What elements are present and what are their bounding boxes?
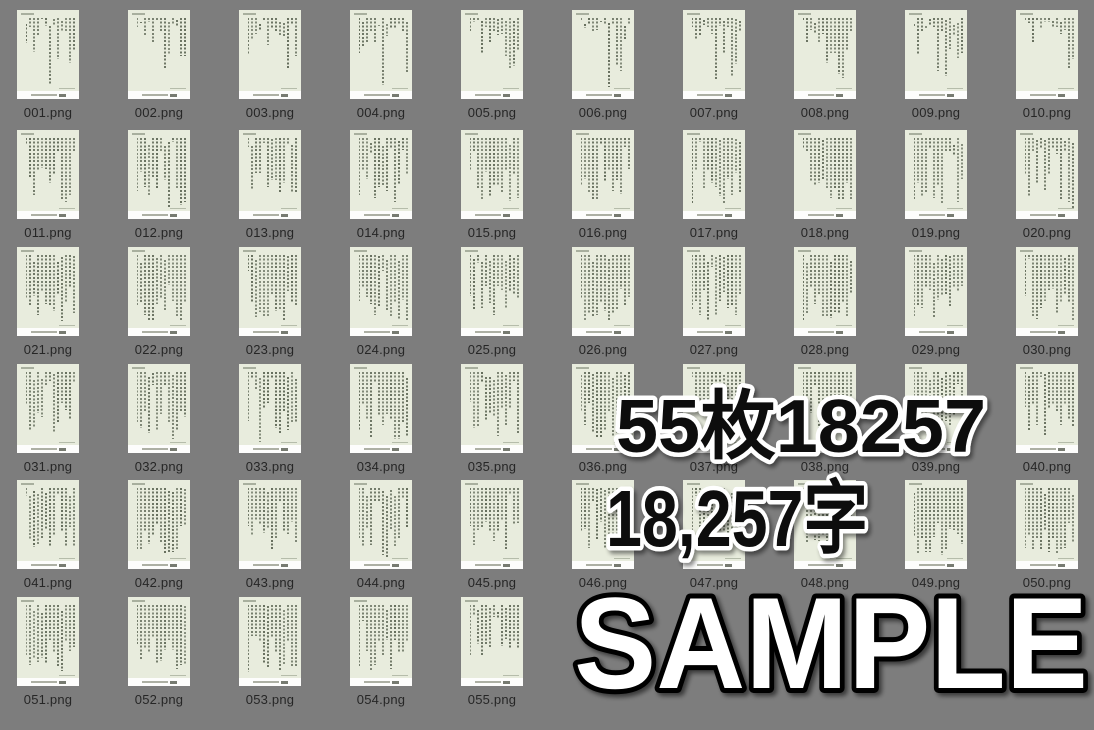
thumbnail-page-number-mark bbox=[392, 208, 408, 210]
thumbnail-text-lines bbox=[909, 488, 963, 555]
file-label[interactable]: 052.png bbox=[114, 693, 204, 706]
file-label[interactable]: 053.png bbox=[225, 693, 315, 706]
file-label[interactable]: 049.png bbox=[891, 576, 981, 589]
thumbnail-footer bbox=[683, 561, 745, 569]
thumbnail-header-mark bbox=[576, 483, 589, 485]
thumbnail-page-number-mark bbox=[170, 88, 186, 90]
thumbnail-footer bbox=[350, 91, 412, 99]
thumbnail-page-number-mark bbox=[947, 558, 963, 560]
file-thumbnail[interactable] bbox=[128, 10, 190, 99]
thumbnail-text-lines bbox=[798, 488, 852, 555]
file-thumbnail[interactable] bbox=[17, 130, 79, 219]
file-label[interactable]: 010.png bbox=[1002, 106, 1092, 119]
thumbnail-footer bbox=[905, 445, 967, 453]
thumbnail-page-number-mark bbox=[725, 208, 741, 210]
file-item[interactable]: 033.png bbox=[239, 364, 301, 473]
thumbnail-footer bbox=[1016, 328, 1078, 336]
thumbnail-page-number-mark bbox=[281, 88, 297, 90]
thumbnail-page-number-mark bbox=[836, 558, 852, 560]
thumbnail-text-lines bbox=[132, 255, 186, 322]
file-item[interactable]: 046.png bbox=[572, 480, 634, 589]
file-label[interactable]: 035.png bbox=[447, 460, 537, 473]
thumbnail-header-mark bbox=[687, 483, 700, 485]
file-item[interactable]: 022.png bbox=[128, 247, 190, 356]
thumbnail-footer bbox=[683, 445, 745, 453]
file-thumbnail[interactable] bbox=[683, 130, 745, 219]
file-thumbnail[interactable] bbox=[17, 10, 79, 99]
file-label[interactable]: 026.png bbox=[558, 343, 648, 356]
file-item[interactable]: 007.png bbox=[683, 10, 745, 119]
thumbnail-page-number-mark bbox=[503, 558, 519, 560]
file-item[interactable]: 023.png bbox=[239, 247, 301, 356]
file-label[interactable]: 006.png bbox=[558, 106, 648, 119]
file-item[interactable]: 042.png bbox=[128, 480, 190, 589]
thumbnail-header-mark bbox=[132, 250, 145, 252]
thumbnail-page-number-mark bbox=[170, 325, 186, 327]
thumbnail-page-number-mark bbox=[59, 558, 75, 560]
thumbnail-page-number-mark bbox=[59, 675, 75, 677]
thumbnail-page-number-mark bbox=[59, 325, 75, 327]
file-item[interactable]: 015.png bbox=[461, 130, 523, 239]
thumbnail-header-mark bbox=[465, 250, 478, 252]
thumbnail-footer bbox=[17, 678, 79, 686]
thumbnail-text-lines bbox=[687, 488, 741, 555]
file-thumbnail[interactable] bbox=[128, 247, 190, 336]
file-item[interactable]: 049.png bbox=[905, 480, 967, 589]
file-thumbnail[interactable] bbox=[461, 130, 523, 219]
file-thumbnail[interactable] bbox=[572, 10, 634, 99]
file-thumbnail[interactable] bbox=[683, 364, 745, 453]
thumbnail-text-lines bbox=[465, 488, 519, 555]
thumbnail-page-number-mark bbox=[947, 442, 963, 444]
file-label[interactable]: 001.png bbox=[3, 106, 93, 119]
thumbnail-header-mark bbox=[1020, 483, 1033, 485]
file-thumbnail[interactable] bbox=[350, 364, 412, 453]
file-thumbnail[interactable] bbox=[350, 130, 412, 219]
file-item[interactable]: 001.png bbox=[17, 10, 79, 119]
file-thumbnail[interactable] bbox=[683, 10, 745, 99]
file-item[interactable]: 040.png bbox=[1016, 364, 1078, 473]
file-thumbnail[interactable] bbox=[17, 247, 79, 336]
file-item[interactable]: 039.png bbox=[905, 364, 967, 473]
file-label[interactable]: 028.png bbox=[780, 343, 870, 356]
file-label[interactable]: 004.png bbox=[336, 106, 426, 119]
file-item[interactable]: 013.png bbox=[239, 130, 301, 239]
file-thumbnail[interactable] bbox=[572, 247, 634, 336]
file-label[interactable]: 011.png bbox=[3, 226, 93, 239]
thumbnail-header-mark bbox=[909, 250, 922, 252]
thumbnail-text-lines bbox=[465, 138, 519, 205]
thumbnail-header-mark bbox=[909, 367, 922, 369]
file-thumbnail[interactable] bbox=[239, 364, 301, 453]
file-item[interactable]: 018.png bbox=[794, 130, 856, 239]
thumbnail-header-mark bbox=[243, 250, 256, 252]
file-thumbnail[interactable] bbox=[794, 10, 856, 99]
file-thumbnail[interactable] bbox=[17, 480, 79, 569]
thumbnail-page-number-mark bbox=[725, 88, 741, 90]
thumbnail-page-number-mark bbox=[59, 88, 75, 90]
file-item[interactable]: 026.png bbox=[572, 247, 634, 356]
thumbnail-footer bbox=[239, 91, 301, 99]
thumbnail-page-number-mark bbox=[281, 675, 297, 677]
file-thumbnail[interactable] bbox=[794, 247, 856, 336]
thumbnail-page-number-mark bbox=[947, 325, 963, 327]
file-label[interactable]: 005.png bbox=[447, 106, 537, 119]
file-item[interactable]: 010.png bbox=[1016, 10, 1078, 119]
file-label[interactable]: 013.png bbox=[225, 226, 315, 239]
file-item[interactable]: 016.png bbox=[572, 130, 634, 239]
file-item[interactable]: 043.png bbox=[239, 480, 301, 589]
thumbnail-footer bbox=[17, 445, 79, 453]
file-label[interactable]: 019.png bbox=[891, 226, 981, 239]
thumbnail-footer bbox=[128, 445, 190, 453]
file-thumbnail[interactable] bbox=[794, 364, 856, 453]
thumbnail-page-number-mark bbox=[1058, 442, 1074, 444]
file-label[interactable]: 044.png bbox=[336, 576, 426, 589]
file-label[interactable]: 017.png bbox=[669, 226, 759, 239]
thumbnail-text-lines bbox=[687, 255, 741, 322]
file-label[interactable]: 022.png bbox=[114, 343, 204, 356]
thumbnail-page-number-mark bbox=[836, 325, 852, 327]
thumbnail-text-lines bbox=[798, 18, 852, 85]
thumbnail-text-lines bbox=[354, 605, 408, 672]
thumbnail-footer bbox=[350, 561, 412, 569]
thumbnail-footer bbox=[794, 211, 856, 219]
thumbnail-header-mark bbox=[465, 367, 478, 369]
file-thumbnail[interactable] bbox=[572, 480, 634, 569]
file-item[interactable]: 005.png bbox=[461, 10, 523, 119]
file-label[interactable]: 029.png bbox=[891, 343, 981, 356]
file-item[interactable]: 021.png bbox=[17, 247, 79, 356]
file-item[interactable]: 038.png bbox=[794, 364, 856, 473]
file-item[interactable]: 054.png bbox=[350, 597, 412, 706]
file-label[interactable]: 015.png bbox=[447, 226, 537, 239]
file-item[interactable]: 055.png bbox=[461, 597, 523, 706]
thumbnail-footer bbox=[128, 91, 190, 99]
file-item[interactable]: 004.png bbox=[350, 10, 412, 119]
thumbnail-header-mark bbox=[576, 13, 589, 15]
file-label[interactable]: 008.png bbox=[780, 106, 870, 119]
thumbnail-header-mark bbox=[798, 250, 811, 252]
file-thumbnail[interactable] bbox=[794, 480, 856, 569]
thumbnail-header-mark bbox=[243, 13, 256, 15]
file-thumbnail[interactable] bbox=[794, 130, 856, 219]
file-thumbnail[interactable] bbox=[128, 597, 190, 686]
file-thumbnail[interactable] bbox=[239, 480, 301, 569]
thumbnail-page-number-mark bbox=[170, 208, 186, 210]
file-item[interactable]: 014.png bbox=[350, 130, 412, 239]
file-thumbnail[interactable] bbox=[461, 247, 523, 336]
thumbnail-footer bbox=[17, 561, 79, 569]
thumbnail-page-number-mark bbox=[392, 88, 408, 90]
file-thumbnail[interactable] bbox=[461, 10, 523, 99]
file-item[interactable]: 024.png bbox=[350, 247, 412, 356]
thumbnail-footer bbox=[794, 91, 856, 99]
file-thumbnail[interactable] bbox=[683, 247, 745, 336]
thumbnail-header-mark bbox=[21, 600, 34, 602]
thumbnail-page-number-mark bbox=[614, 442, 630, 444]
file-item[interactable]: 029.png bbox=[905, 247, 967, 356]
thumbnail-header-mark bbox=[687, 13, 700, 15]
file-item[interactable]: 025.png bbox=[461, 247, 523, 356]
file-thumbnail[interactable] bbox=[239, 10, 301, 99]
thumbnail-header-mark bbox=[21, 13, 34, 15]
thumbnail-header-mark bbox=[132, 133, 145, 135]
thumbnail-page-number-mark bbox=[503, 88, 519, 90]
file-item[interactable]: 002.png bbox=[128, 10, 190, 119]
thumbnail-page-number-mark bbox=[503, 325, 519, 327]
thumbnail-text-lines bbox=[687, 18, 741, 85]
file-label[interactable]: 043.png bbox=[225, 576, 315, 589]
file-item[interactable]: 032.png bbox=[128, 364, 190, 473]
file-label[interactable]: 025.png bbox=[447, 343, 537, 356]
file-thumbnail[interactable] bbox=[905, 247, 967, 336]
file-item[interactable]: 020.png bbox=[1016, 130, 1078, 239]
thumbnail-text-lines bbox=[687, 138, 741, 205]
thumbnail-header-mark bbox=[1020, 250, 1033, 252]
thumbnail-footer bbox=[905, 91, 967, 99]
file-thumbnail[interactable] bbox=[239, 130, 301, 219]
file-label[interactable]: 018.png bbox=[780, 226, 870, 239]
file-thumbnail[interactable] bbox=[17, 364, 79, 453]
thumbnail-header-mark bbox=[1020, 367, 1033, 369]
file-thumbnail[interactable] bbox=[350, 480, 412, 569]
thumbnail-text-lines bbox=[243, 18, 297, 85]
file-thumbnail[interactable] bbox=[1016, 130, 1078, 219]
file-item[interactable]: 036.png bbox=[572, 364, 634, 473]
thumbnail-text-lines bbox=[576, 488, 630, 555]
file-label[interactable]: 054.png bbox=[336, 693, 426, 706]
thumbnail-footer bbox=[17, 91, 79, 99]
thumbnail-footer bbox=[1016, 91, 1078, 99]
thumbnail-header-mark bbox=[909, 133, 922, 135]
file-label[interactable]: 036.png bbox=[558, 460, 648, 473]
thumbnail-footer bbox=[350, 211, 412, 219]
file-label[interactable]: 042.png bbox=[114, 576, 204, 589]
thumbnail-page-number-mark bbox=[614, 325, 630, 327]
thumbnail-header-mark bbox=[132, 367, 145, 369]
thumbnail-header-mark bbox=[1020, 133, 1033, 135]
file-label[interactable]: 051.png bbox=[3, 693, 93, 706]
thumbnail-page-number-mark bbox=[725, 558, 741, 560]
thumbnail-footer bbox=[1016, 445, 1078, 453]
file-thumbnail[interactable] bbox=[572, 130, 634, 219]
thumbnail-footer bbox=[239, 211, 301, 219]
file-item[interactable]: 019.png bbox=[905, 130, 967, 239]
file-thumbnail[interactable] bbox=[1016, 247, 1078, 336]
file-item[interactable]: 035.png bbox=[461, 364, 523, 473]
file-item[interactable]: 050.png bbox=[1016, 480, 1078, 589]
file-thumbnail[interactable] bbox=[239, 247, 301, 336]
thumbnail-header-mark bbox=[687, 133, 700, 135]
thumbnail-text-lines bbox=[576, 18, 630, 85]
thumbnail-text-lines bbox=[1020, 138, 1074, 205]
thumbnail-header-mark bbox=[354, 483, 367, 485]
thumbnail-header-mark bbox=[21, 367, 34, 369]
thumbnail-footer bbox=[794, 445, 856, 453]
thumbnail-text-lines bbox=[132, 372, 186, 439]
file-thumbnail[interactable] bbox=[905, 130, 967, 219]
thumbnail-text-lines bbox=[909, 18, 963, 85]
file-item[interactable]: 006.png bbox=[572, 10, 634, 119]
thumbnail-page-number-mark bbox=[503, 675, 519, 677]
thumbnail-header-mark bbox=[576, 367, 589, 369]
thumbnail-text-lines bbox=[798, 255, 852, 322]
file-label[interactable]: 014.png bbox=[336, 226, 426, 239]
file-label[interactable]: 031.png bbox=[3, 460, 93, 473]
thumbnail-header-mark bbox=[354, 13, 367, 15]
file-item[interactable]: 012.png bbox=[128, 130, 190, 239]
file-label[interactable]: 033.png bbox=[225, 460, 315, 473]
thumbnail-header-mark bbox=[243, 600, 256, 602]
file-thumbnail[interactable] bbox=[350, 247, 412, 336]
file-label[interactable]: 055.png bbox=[447, 693, 537, 706]
file-label[interactable]: 007.png bbox=[669, 106, 759, 119]
file-thumbnail[interactable] bbox=[128, 364, 190, 453]
thumbnail-text-lines bbox=[798, 138, 852, 205]
file-label[interactable]: 048.png bbox=[780, 576, 870, 589]
thumbnail-text-lines bbox=[909, 138, 963, 205]
thumbnail-footer bbox=[239, 445, 301, 453]
thumbnail-header-mark bbox=[687, 250, 700, 252]
file-item[interactable]: 051.png bbox=[17, 597, 79, 706]
thumbnail-header-mark bbox=[354, 133, 367, 135]
file-thumbnail[interactable] bbox=[905, 364, 967, 453]
file-thumbnail[interactable] bbox=[461, 480, 523, 569]
thumbnail-header-mark bbox=[465, 133, 478, 135]
file-item[interactable]: 028.png bbox=[794, 247, 856, 356]
file-label[interactable]: 009.png bbox=[891, 106, 981, 119]
file-label[interactable]: 046.png bbox=[558, 576, 648, 589]
thumbnail-page-number-mark bbox=[614, 558, 630, 560]
thumbnail-page-number-mark bbox=[170, 558, 186, 560]
file-label[interactable]: 050.png bbox=[1002, 576, 1092, 589]
file-label[interactable]: 032.png bbox=[114, 460, 204, 473]
file-item[interactable]: 031.png bbox=[17, 364, 79, 473]
thumbnail-footer bbox=[905, 561, 967, 569]
file-label[interactable]: 034.png bbox=[336, 460, 426, 473]
file-label[interactable]: 041.png bbox=[3, 576, 93, 589]
thumbnail-text-lines bbox=[354, 138, 408, 205]
file-label[interactable]: 047.png bbox=[669, 576, 759, 589]
thumbnail-footer bbox=[461, 678, 523, 686]
file-thumbnail[interactable] bbox=[128, 480, 190, 569]
file-item[interactable]: 009.png bbox=[905, 10, 967, 119]
thumbnail-page-number-mark bbox=[947, 208, 963, 210]
thumbnail-text-lines bbox=[132, 138, 186, 205]
thumbnail-footer bbox=[461, 561, 523, 569]
file-item[interactable]: 003.png bbox=[239, 10, 301, 119]
file-thumbnail[interactable] bbox=[905, 480, 967, 569]
file-thumbnail[interactable] bbox=[572, 364, 634, 453]
thumbnail-page-number-mark bbox=[725, 325, 741, 327]
file-thumbnail[interactable] bbox=[17, 597, 79, 686]
file-label[interactable]: 027.png bbox=[669, 343, 759, 356]
thumbnail-footer bbox=[239, 328, 301, 336]
thumbnail-page-number-mark bbox=[281, 208, 297, 210]
file-thumbnail[interactable] bbox=[1016, 364, 1078, 453]
thumbnail-text-lines bbox=[909, 372, 963, 439]
thumbnail-header-mark bbox=[132, 600, 145, 602]
file-label[interactable]: 045.png bbox=[447, 576, 537, 589]
thumbnail-page-number-mark bbox=[947, 88, 963, 90]
thumbnail-page-number-mark bbox=[836, 442, 852, 444]
file-item[interactable]: 053.png bbox=[239, 597, 301, 706]
file-item[interactable]: 041.png bbox=[17, 480, 79, 589]
file-label[interactable]: 023.png bbox=[225, 343, 315, 356]
file-thumbnail[interactable] bbox=[128, 130, 190, 219]
file-label[interactable]: 002.png bbox=[114, 106, 204, 119]
thumbnail-footer bbox=[1016, 211, 1078, 219]
thumbnail-text-lines bbox=[243, 605, 297, 672]
file-thumbnail[interactable] bbox=[350, 597, 412, 686]
file-label[interactable]: 024.png bbox=[336, 343, 426, 356]
file-thumbnail[interactable] bbox=[239, 597, 301, 686]
file-thumbnail[interactable] bbox=[350, 10, 412, 99]
file-item[interactable]: 045.png bbox=[461, 480, 523, 589]
file-item[interactable]: 017.png bbox=[683, 130, 745, 239]
thumbnail-text-lines bbox=[687, 372, 741, 439]
thumbnail-page-number-mark bbox=[1058, 325, 1074, 327]
file-label[interactable]: 030.png bbox=[1002, 343, 1092, 356]
thumbnail-header-mark bbox=[576, 133, 589, 135]
thumbnail-header-mark bbox=[354, 250, 367, 252]
thumbnail-text-lines bbox=[1020, 255, 1074, 322]
thumbnail-text-lines bbox=[243, 372, 297, 439]
file-item[interactable]: 008.png bbox=[794, 10, 856, 119]
thumbnail-text-lines bbox=[798, 372, 852, 439]
file-item[interactable]: 027.png bbox=[683, 247, 745, 356]
thumbnail-footer bbox=[572, 561, 634, 569]
file-label[interactable]: 003.png bbox=[225, 106, 315, 119]
thumbnail-footer bbox=[461, 445, 523, 453]
file-item[interactable]: 052.png bbox=[128, 597, 190, 706]
file-item[interactable]: 037.png bbox=[683, 364, 745, 473]
file-label[interactable]: 021.png bbox=[3, 343, 93, 356]
file-label[interactable]: 037.png bbox=[669, 460, 759, 473]
file-thumbnail[interactable] bbox=[1016, 480, 1078, 569]
file-thumbnail[interactable] bbox=[461, 364, 523, 453]
file-item[interactable]: 034.png bbox=[350, 364, 412, 473]
thumbnail-footer bbox=[683, 211, 745, 219]
file-label[interactable]: 039.png bbox=[891, 460, 981, 473]
file-label[interactable]: 040.png bbox=[1002, 460, 1092, 473]
file-label[interactable]: 038.png bbox=[780, 460, 870, 473]
file-item[interactable]: 011.png bbox=[17, 130, 79, 239]
thumbnail-text-lines bbox=[21, 255, 75, 322]
file-label[interactable]: 012.png bbox=[114, 226, 204, 239]
file-item[interactable]: 044.png bbox=[350, 480, 412, 589]
thumbnail-footer bbox=[905, 211, 967, 219]
file-thumbnail[interactable] bbox=[905, 10, 967, 99]
file-thumbnail[interactable] bbox=[683, 480, 745, 569]
file-item[interactable]: 048.png bbox=[794, 480, 856, 589]
thumbnail-text-lines bbox=[576, 138, 630, 205]
thumbnail-header-mark bbox=[354, 600, 367, 602]
file-thumbnail[interactable] bbox=[461, 597, 523, 686]
thumbnail-header-mark bbox=[243, 483, 256, 485]
thumbnail-footer bbox=[350, 328, 412, 336]
thumbnail-header-mark bbox=[243, 367, 256, 369]
file-item[interactable]: 047.png bbox=[683, 480, 745, 589]
file-item[interactable]: 030.png bbox=[1016, 247, 1078, 356]
file-label[interactable]: 020.png bbox=[1002, 226, 1092, 239]
file-thumbnail[interactable] bbox=[1016, 10, 1078, 99]
thumbnail-footer bbox=[572, 91, 634, 99]
thumbnail-page-number-mark bbox=[1058, 208, 1074, 210]
thumbnail-page-number-mark bbox=[59, 208, 75, 210]
file-label[interactable]: 016.png bbox=[558, 226, 648, 239]
